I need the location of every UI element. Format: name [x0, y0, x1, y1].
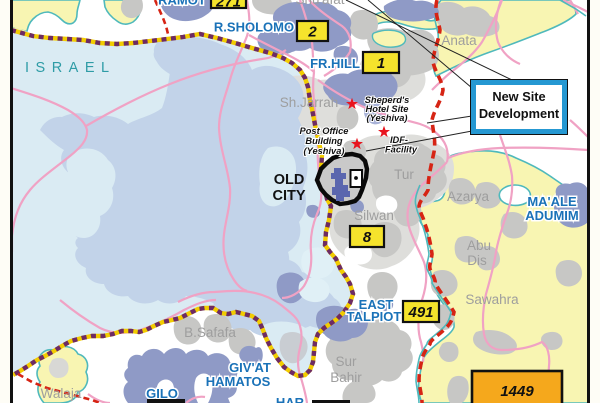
svg-text:New Site: New Site [492, 89, 545, 104]
svg-text:FR.HILL: FR.HILL [310, 56, 360, 71]
svg-text:Post Office: Post Office [300, 126, 349, 136]
svg-text:GIV'AT: GIV'AT [229, 360, 271, 375]
svg-text:(Yeshiva): (Yeshiva) [367, 113, 408, 123]
svg-text:HAMATOS: HAMATOS [206, 374, 271, 389]
svg-text:B.Safafa: B.Safafa [184, 325, 236, 340]
svg-text:Silwan: Silwan [354, 208, 394, 223]
svg-text:Facility: Facility [385, 145, 418, 155]
svg-text:2: 2 [307, 24, 317, 41]
svg-text:TALPIOT: TALPIOT [347, 309, 402, 324]
svg-text:RAMOT: RAMOT [158, 0, 206, 8]
svg-text:491: 491 [407, 304, 433, 321]
svg-text:Azarya: Azarya [447, 189, 490, 204]
svg-text:Building: Building [305, 136, 342, 146]
svg-text:Sh.Jarrah: Sh.Jarrah [280, 95, 339, 110]
svg-text:271: 271 [215, 0, 241, 11]
svg-text:Anata: Anata [441, 33, 477, 48]
svg-text:Shu'afat: Shu'afat [295, 0, 344, 7]
svg-text:OLD: OLD [274, 172, 305, 188]
svg-text:(Yeshiva): (Yeshiva) [304, 146, 345, 156]
svg-text:1: 1 [377, 55, 385, 72]
svg-text:8: 8 [363, 229, 372, 246]
svg-text:Sawahra: Sawahra [465, 292, 519, 307]
svg-text:GILO: GILO [146, 386, 178, 401]
svg-text:Abu: Abu [467, 238, 491, 253]
svg-text:IDF-: IDF- [390, 135, 408, 145]
svg-text:Tur: Tur [394, 167, 414, 182]
svg-text:R.SHOLOMO: R.SHOLOMO [214, 20, 294, 35]
svg-text:Sur: Sur [335, 354, 357, 369]
svg-text:Dis: Dis [467, 253, 487, 268]
svg-text:HAR: HAR [276, 395, 305, 403]
svg-text:1449: 1449 [500, 383, 534, 400]
svg-text:ISRAEL: ISRAEL [25, 60, 116, 76]
svg-text:Bahir: Bahir [330, 370, 362, 385]
svg-text:Development: Development [479, 106, 560, 121]
svg-text:MA'ALE: MA'ALE [527, 194, 577, 209]
svg-text:Walaja: Walaja [41, 386, 82, 401]
svg-text:ADUMIM: ADUMIM [525, 208, 578, 223]
svg-text:CITY: CITY [272, 188, 305, 204]
